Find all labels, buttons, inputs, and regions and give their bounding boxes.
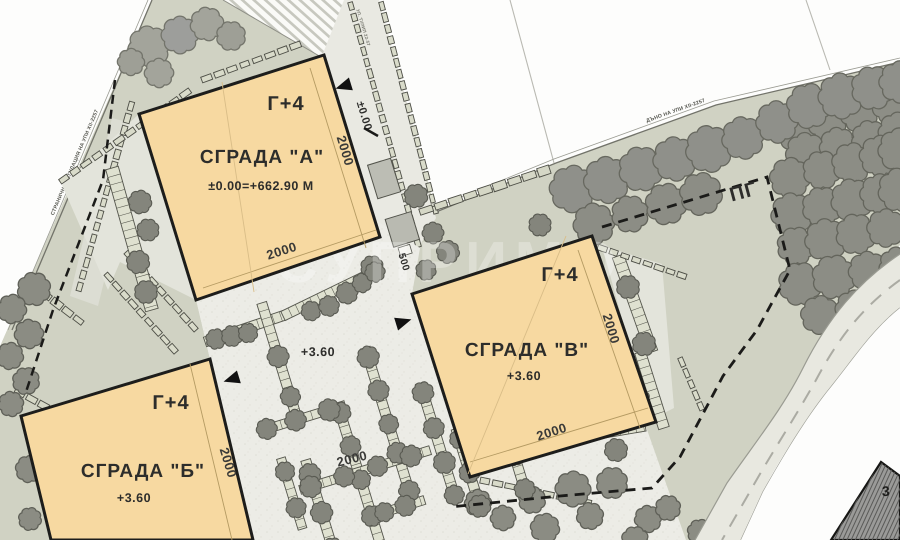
svg-text:СГРАДА "А": СГРАДА "А"	[200, 147, 324, 168]
svg-text:3: 3	[882, 483, 890, 499]
svg-text:СГРАДА "В": СГРАДА "В"	[465, 340, 589, 361]
svg-text:+3.60: +3.60	[507, 369, 541, 383]
svg-text:+3.60: +3.60	[117, 491, 151, 505]
svg-text:±0.00=+662.90 М: ±0.00=+662.90 М	[208, 179, 313, 193]
svg-text:Г+4: Г+4	[541, 264, 578, 286]
svg-text:Г+4: Г+4	[152, 392, 189, 414]
svg-text:+3.60: +3.60	[301, 345, 335, 359]
svg-text:СГРАДА "Б": СГРАДА "Б"	[81, 461, 205, 482]
svg-text:Г+4: Г+4	[267, 93, 304, 115]
